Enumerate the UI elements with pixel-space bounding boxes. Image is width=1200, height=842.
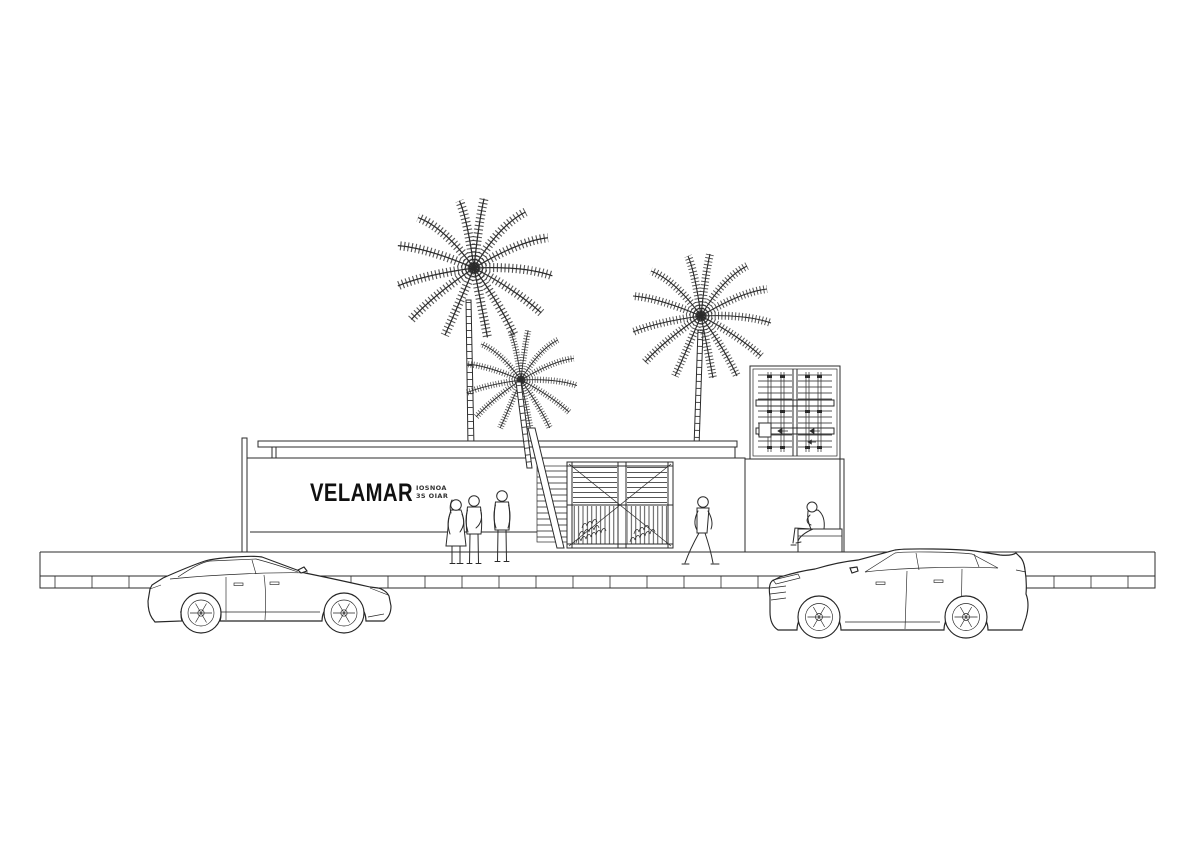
roof-support-post [272,447,276,458]
building-elevation: VELAMAR IOSNOA 3S OIAR [242,366,844,552]
sign-subtext-line2: 3S OIAR [416,492,448,500]
sign-subtext-line1: IOSNOA [416,484,447,492]
sedan-front-wheel [324,593,364,633]
head [469,496,480,507]
suv-rear-wheel [945,596,987,638]
sedan-mirror [298,567,307,573]
container-left-corrugation [758,374,792,452]
elevation-drawing: VELAMAR IOSNOA 3S OIAR [0,0,1200,842]
left-post [242,438,247,552]
head [497,491,508,502]
suv-car [769,549,1028,638]
drawing-canvas: VELAMAR IOSNOA 3S OIAR [0,0,1200,842]
double-entry-gate [567,462,673,548]
sedan-car [148,556,391,633]
sign-text-velamar: VELAMAR [310,479,413,507]
shipping-container [750,366,840,459]
roof-slab [258,441,737,447]
head [451,500,462,511]
head [698,497,709,508]
palm-trunk [466,300,474,447]
suv-front-wheel [798,596,840,638]
head [807,502,817,512]
container-label-plate [759,423,771,437]
sedan-rear-wheel [181,593,221,633]
bench [798,529,842,552]
palm-canopy [398,199,553,338]
container-right-corrugation [798,374,832,452]
